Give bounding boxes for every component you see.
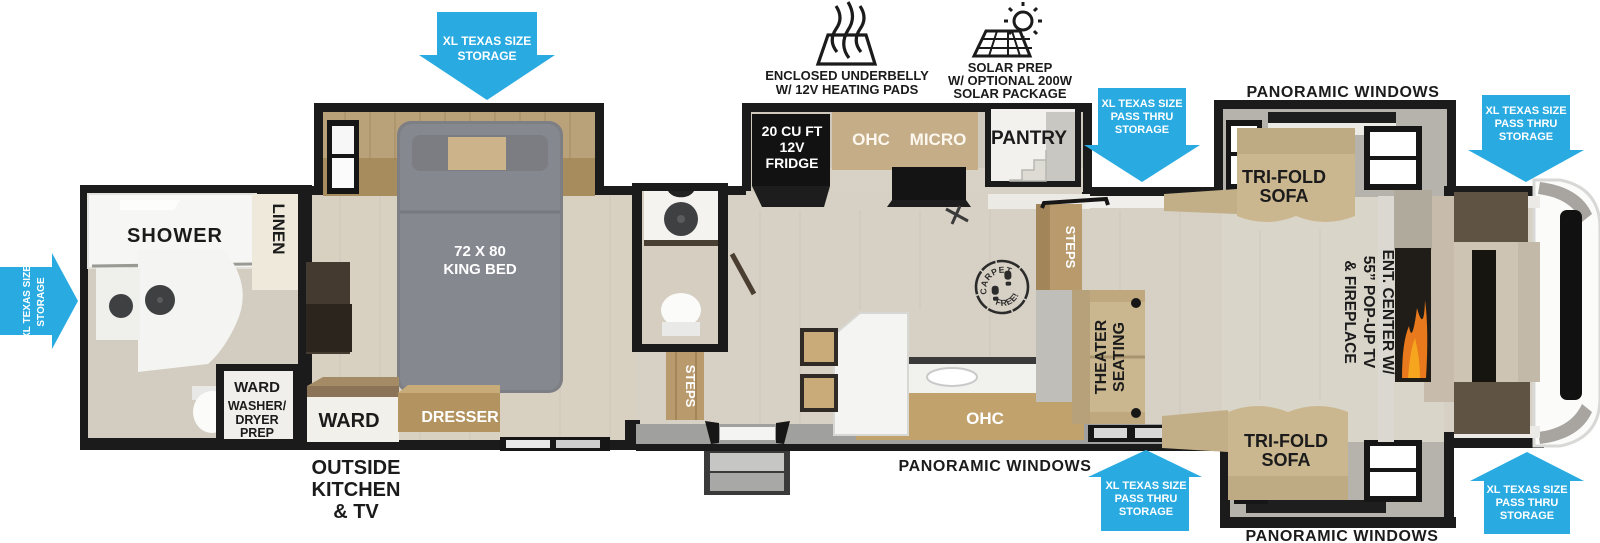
svg-text:STEPS: STEPS: [1063, 226, 1078, 269]
svg-text:PANORAMIC WINDOWS: PANORAMIC WINDOWS: [1246, 528, 1439, 543]
svg-text:SEATING: SEATING: [1111, 322, 1128, 392]
svg-text:PANORAMIC WINDOWS: PANORAMIC WINDOWS: [1247, 84, 1440, 101]
svg-text:STORAGE: STORAGE: [1115, 124, 1169, 136]
svg-text:PASS THRU: PASS THRU: [1495, 118, 1558, 130]
svg-text:TRI-FOLD: TRI-FOLD: [1242, 167, 1326, 187]
svg-text:12V: 12V: [780, 139, 806, 155]
svg-text:XL TEXAS SIZE: XL TEXAS SIZE: [1486, 484, 1567, 496]
svg-text:SHOWER: SHOWER: [127, 225, 223, 247]
svg-text:MICRO: MICRO: [910, 130, 967, 149]
svg-text:W/ 12V HEATING PADS: W/ 12V HEATING PADS: [776, 82, 919, 97]
svg-text:OUTSIDE: OUTSIDE: [312, 457, 401, 479]
svg-text:STORAGE: STORAGE: [1499, 131, 1553, 143]
svg-text:ENT. CENTER W/: ENT. CENTER W/: [1379, 250, 1396, 376]
svg-text:FRIDGE: FRIDGE: [766, 155, 819, 171]
svg-text:STORAGE: STORAGE: [36, 277, 47, 327]
svg-text:XL TEXAS SIZE: XL TEXAS SIZE: [1101, 98, 1182, 110]
svg-text:SOFA: SOFA: [1261, 450, 1310, 470]
svg-text:SOLAR PACKAGE: SOLAR PACKAGE: [953, 86, 1066, 101]
svg-text:LINEN: LINEN: [269, 204, 288, 255]
svg-text:PANTRY: PANTRY: [991, 128, 1067, 149]
svg-text:XL TEXAS SIZE: XL TEXAS SIZE: [22, 265, 33, 339]
svg-text:PASS THRU: PASS THRU: [1115, 493, 1178, 505]
svg-text:STORAGE: STORAGE: [1500, 510, 1554, 522]
svg-text:STORAGE: STORAGE: [457, 49, 516, 63]
svg-text:THEATER: THEATER: [1093, 319, 1110, 394]
svg-text:& FIREPLACE: & FIREPLACE: [1341, 260, 1358, 363]
svg-text:PASS THRU: PASS THRU: [1496, 497, 1559, 509]
svg-text:PREP: PREP: [240, 426, 274, 440]
svg-text:XL TEXAS SIZE: XL TEXAS SIZE: [443, 34, 531, 48]
svg-text:20 CU FT: 20 CU FT: [762, 123, 823, 139]
svg-text:WASHER/: WASHER/: [228, 399, 287, 413]
svg-text:WARD: WARD: [234, 379, 280, 396]
svg-text:KING BED: KING BED: [443, 261, 517, 278]
svg-text:KITCHEN: KITCHEN: [312, 479, 401, 501]
svg-text:72 X 80: 72 X 80: [454, 243, 506, 260]
svg-text:ENCLOSED UNDERBELLY: ENCLOSED UNDERBELLY: [765, 68, 929, 83]
svg-text:& TV: & TV: [333, 501, 379, 523]
svg-text:TRI-FOLD: TRI-FOLD: [1244, 431, 1328, 451]
svg-text:OHC: OHC: [852, 130, 890, 149]
svg-text:PANORAMIC WINDOWS: PANORAMIC WINDOWS: [899, 458, 1092, 475]
svg-text:OHC: OHC: [966, 409, 1004, 428]
svg-text:55” POP-UP TV: 55” POP-UP TV: [1360, 256, 1377, 369]
svg-text:PASS THRU: PASS THRU: [1111, 111, 1174, 123]
svg-text:DRYER: DRYER: [235, 413, 278, 427]
svg-text:XL TEXAS SIZE: XL TEXAS SIZE: [1105, 480, 1186, 492]
svg-text:STEPS: STEPS: [683, 365, 698, 408]
svg-text:STORAGE: STORAGE: [1119, 506, 1173, 518]
svg-text:WARD: WARD: [318, 410, 379, 432]
svg-text:SOFA: SOFA: [1259, 186, 1308, 206]
svg-text:XL TEXAS SIZE: XL TEXAS SIZE: [1485, 105, 1566, 117]
svg-text:DRESSER: DRESSER: [421, 409, 499, 426]
